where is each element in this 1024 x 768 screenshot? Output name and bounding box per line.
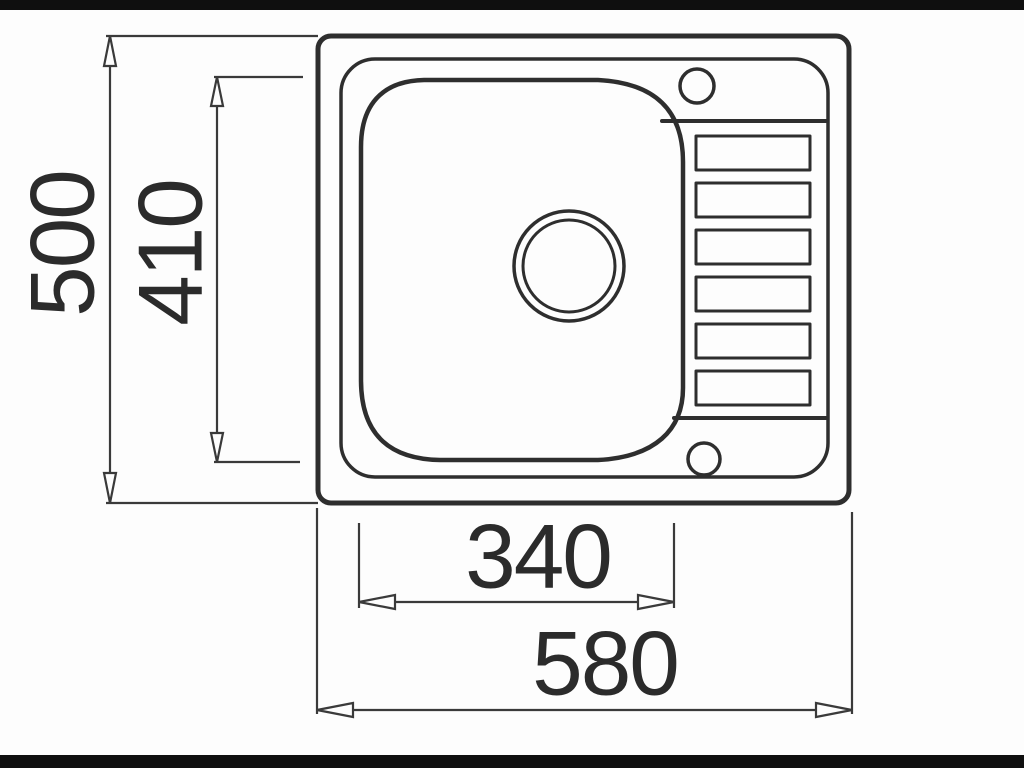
dim-410-arrow-up bbox=[211, 77, 223, 106]
page: 500 410 340 580 bbox=[0, 0, 1024, 768]
dim-340-arrow-right bbox=[638, 595, 674, 609]
dim-500-arrow-up bbox=[104, 36, 116, 66]
dim-500-arrow-down bbox=[104, 473, 116, 503]
dim-bowl-depth bbox=[211, 77, 303, 462]
dim-580-arrow-left bbox=[317, 703, 353, 717]
dim-label-overall-depth: 500 bbox=[13, 171, 114, 317]
sink-body bbox=[318, 36, 849, 503]
dim-340-arrow-left bbox=[359, 595, 395, 609]
dim-580-arrow-right bbox=[816, 703, 852, 717]
sink-outer-rim bbox=[318, 36, 849, 503]
dim-label-bowl-width: 340 bbox=[465, 507, 611, 608]
dim-410-arrow-down bbox=[211, 433, 223, 462]
dim-label-overall-width: 580 bbox=[532, 614, 678, 715]
dim-label-bowl-depth: 410 bbox=[121, 180, 222, 326]
sink-technical-drawing: 500 410 340 580 bbox=[0, 0, 1024, 768]
